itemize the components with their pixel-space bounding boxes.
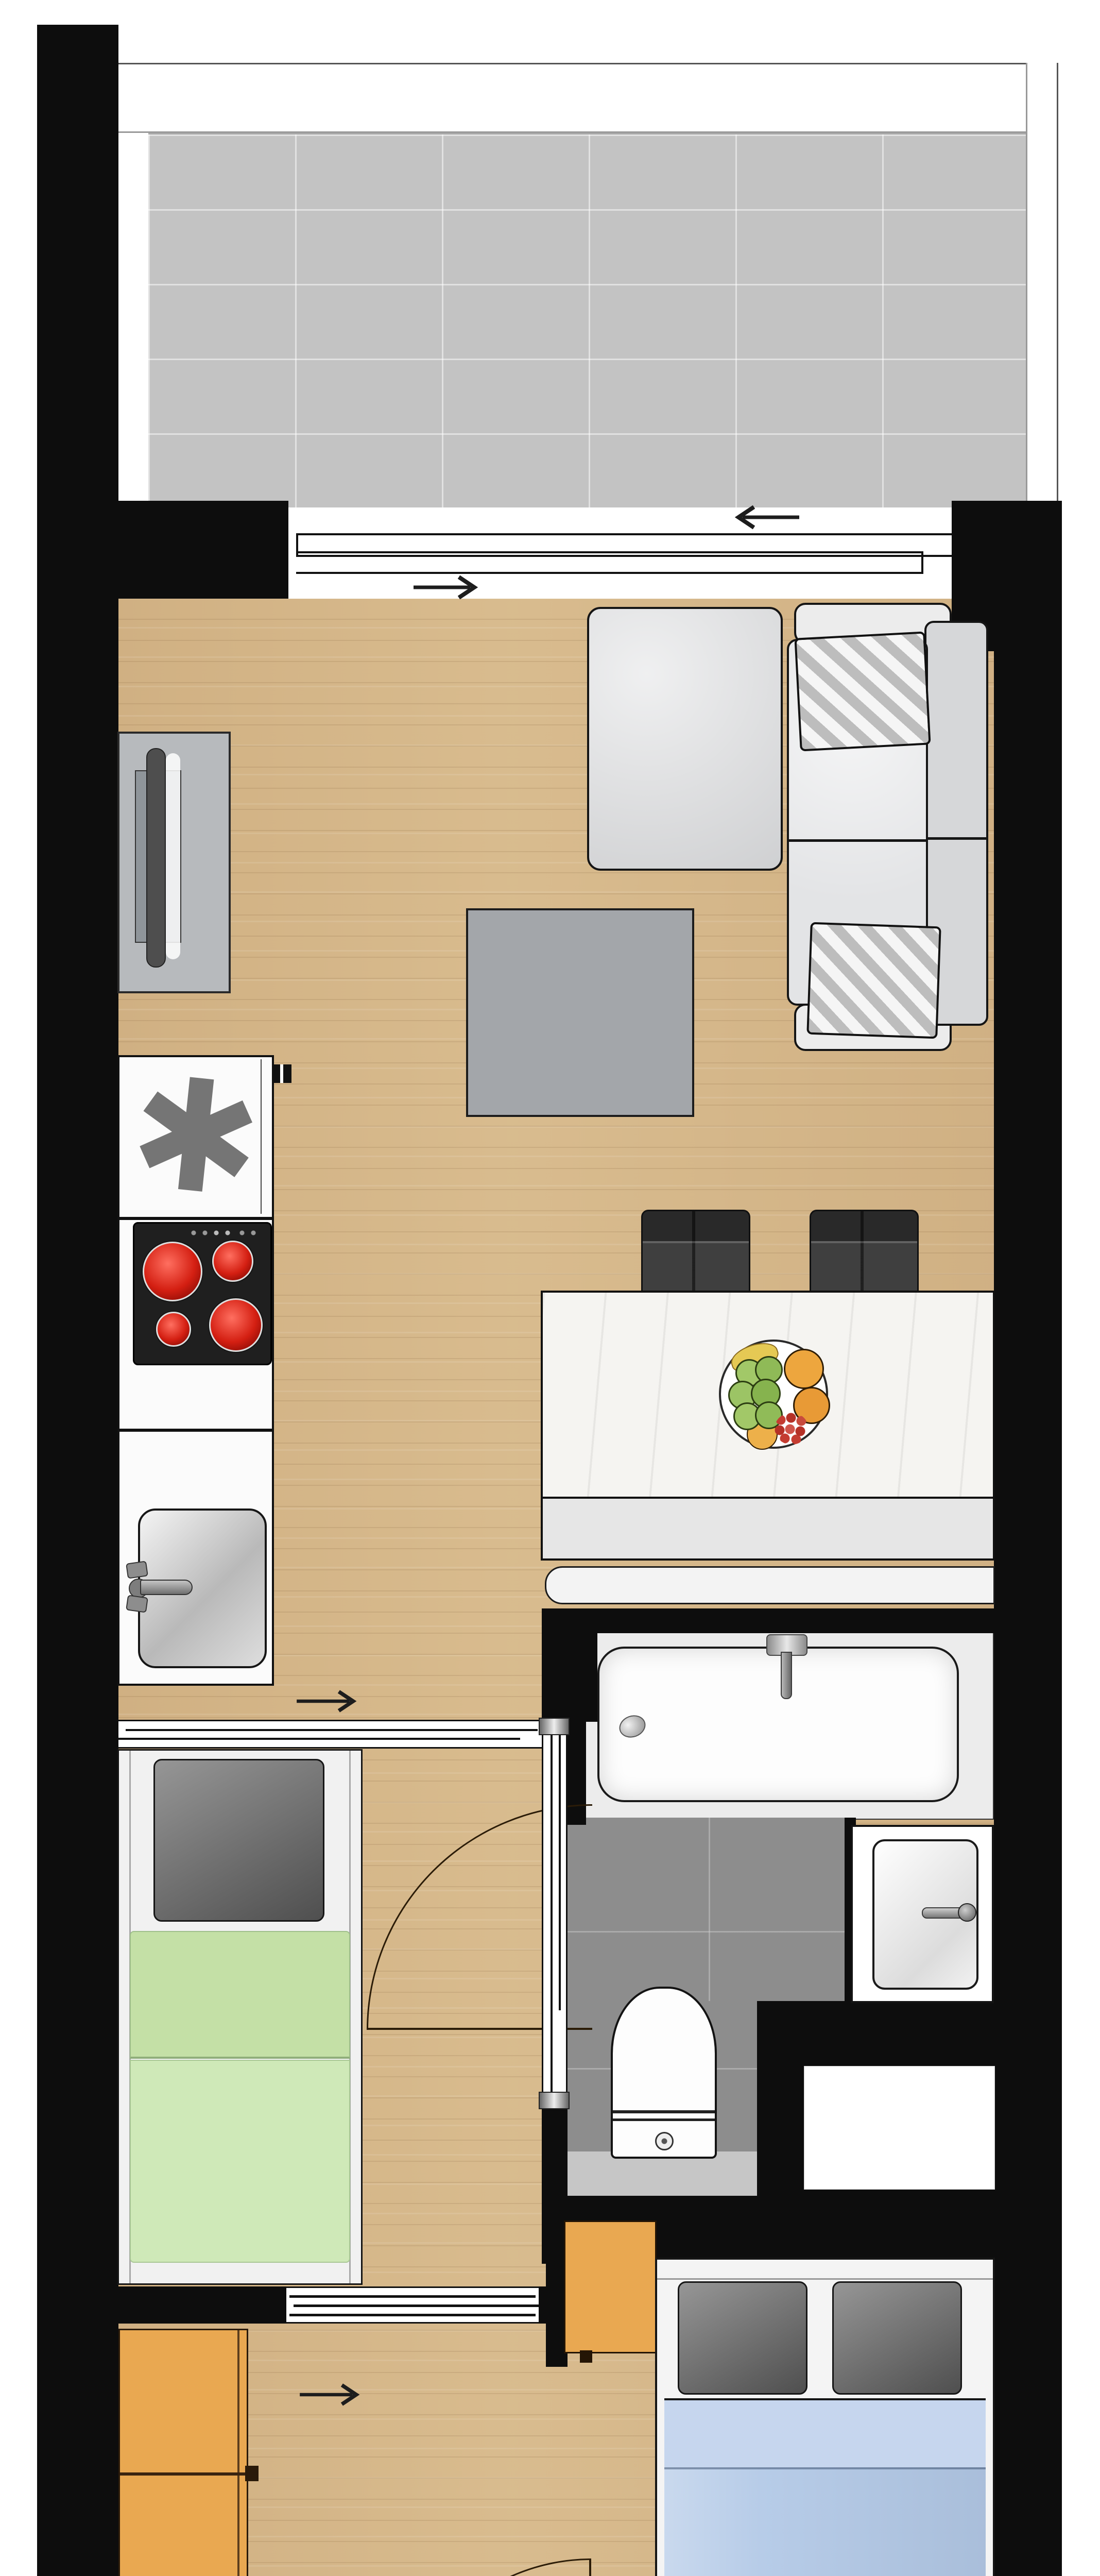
slide-arrow-right-icon bbox=[407, 573, 494, 602]
tv-screen-icon bbox=[146, 748, 166, 968]
double-bed-blanket bbox=[664, 2398, 986, 2576]
wardrobe-orange bbox=[118, 2329, 248, 2576]
bar-stool-left bbox=[641, 1210, 750, 1298]
slide-arrow-left-icon bbox=[721, 503, 803, 532]
slide-arrow-right-icon-2 bbox=[293, 1688, 370, 1715]
single-bed-pillow bbox=[153, 1759, 324, 1922]
wall-top-interior bbox=[118, 501, 288, 599]
terrace-railing-top bbox=[118, 63, 1058, 133]
slide-arrow-right-icon-3 bbox=[296, 2381, 373, 2408]
sliding-door-bedroom-single bbox=[118, 1720, 542, 1749]
kitchen-island-bench bbox=[545, 1566, 995, 1604]
bathroom-door-cap-bottom bbox=[539, 2092, 570, 2109]
sliding-panel-b bbox=[296, 551, 923, 574]
terrace-floor bbox=[148, 133, 1026, 507]
burner-small-bottom-left bbox=[156, 1312, 191, 1347]
wardrobe-handle-top bbox=[245, 2466, 259, 2481]
kitchen-island-ledge bbox=[541, 1497, 995, 1561]
floor-plan: ✱ bbox=[0, 0, 1100, 2576]
terrace-railing-right bbox=[1026, 63, 1058, 542]
refrigerator-handle bbox=[274, 1064, 291, 1083]
sofa-chaise bbox=[587, 607, 783, 871]
washbasin-faucet-knob bbox=[958, 1903, 976, 1922]
wall-bathroom-west-upper bbox=[542, 1633, 597, 1722]
sofa-pillow-striped-bottom bbox=[806, 922, 941, 1039]
wall-partition-cap bbox=[539, 2286, 568, 2324]
orange-1 bbox=[784, 1349, 824, 1389]
sink-faucet-handle-bottom bbox=[126, 1595, 148, 1613]
bar-stool-right bbox=[810, 1210, 919, 1298]
refrigerator-symbol: ✱ bbox=[122, 1059, 270, 1216]
bathtub bbox=[597, 1647, 959, 1802]
wall-left bbox=[37, 25, 118, 2576]
sliding-door-bathroom bbox=[542, 1722, 568, 2107]
double-bed-pillow-left bbox=[678, 2281, 807, 2395]
single-bed-blanket bbox=[130, 2060, 350, 2263]
double-bed-pillow-right bbox=[832, 2281, 962, 2395]
bathroom-door-cap-top bbox=[539, 1718, 570, 1735]
wall-right-main bbox=[994, 650, 1062, 2576]
burner-large-bottom-right bbox=[209, 1298, 263, 1352]
fruit-bowl bbox=[719, 1340, 828, 1449]
wall-bath-track-south bbox=[542, 2106, 568, 2197]
sliding-door-bedroom-double bbox=[286, 2286, 539, 2324]
bathtub-faucet-spout bbox=[781, 1652, 792, 1699]
single-bed-blanket-fold bbox=[130, 1931, 350, 2059]
sliding-door-terrace bbox=[288, 507, 952, 599]
sofa-pillow-striped-top bbox=[794, 632, 931, 752]
berries bbox=[775, 1413, 809, 1445]
wall-partition-beds bbox=[118, 2286, 286, 2324]
cabinet-orange-knob bbox=[580, 2350, 592, 2363]
burner-large-top-left bbox=[143, 1242, 202, 1301]
service-shaft bbox=[804, 2066, 995, 2190]
toilet-area-floor bbox=[568, 1818, 853, 2001]
burner-medium-top-right bbox=[212, 1241, 253, 1282]
sink-faucet-spout bbox=[140, 1580, 193, 1595]
cooktop-controls bbox=[191, 1230, 257, 1235]
wall-bathroom-north bbox=[542, 1608, 994, 1633]
toilet-flush-button bbox=[655, 2132, 674, 2150]
coffee-table bbox=[466, 908, 694, 1117]
tv-highlight bbox=[166, 753, 180, 959]
sink-faucet-handle-top bbox=[126, 1561, 148, 1579]
cabinet-orange bbox=[564, 2221, 657, 2353]
